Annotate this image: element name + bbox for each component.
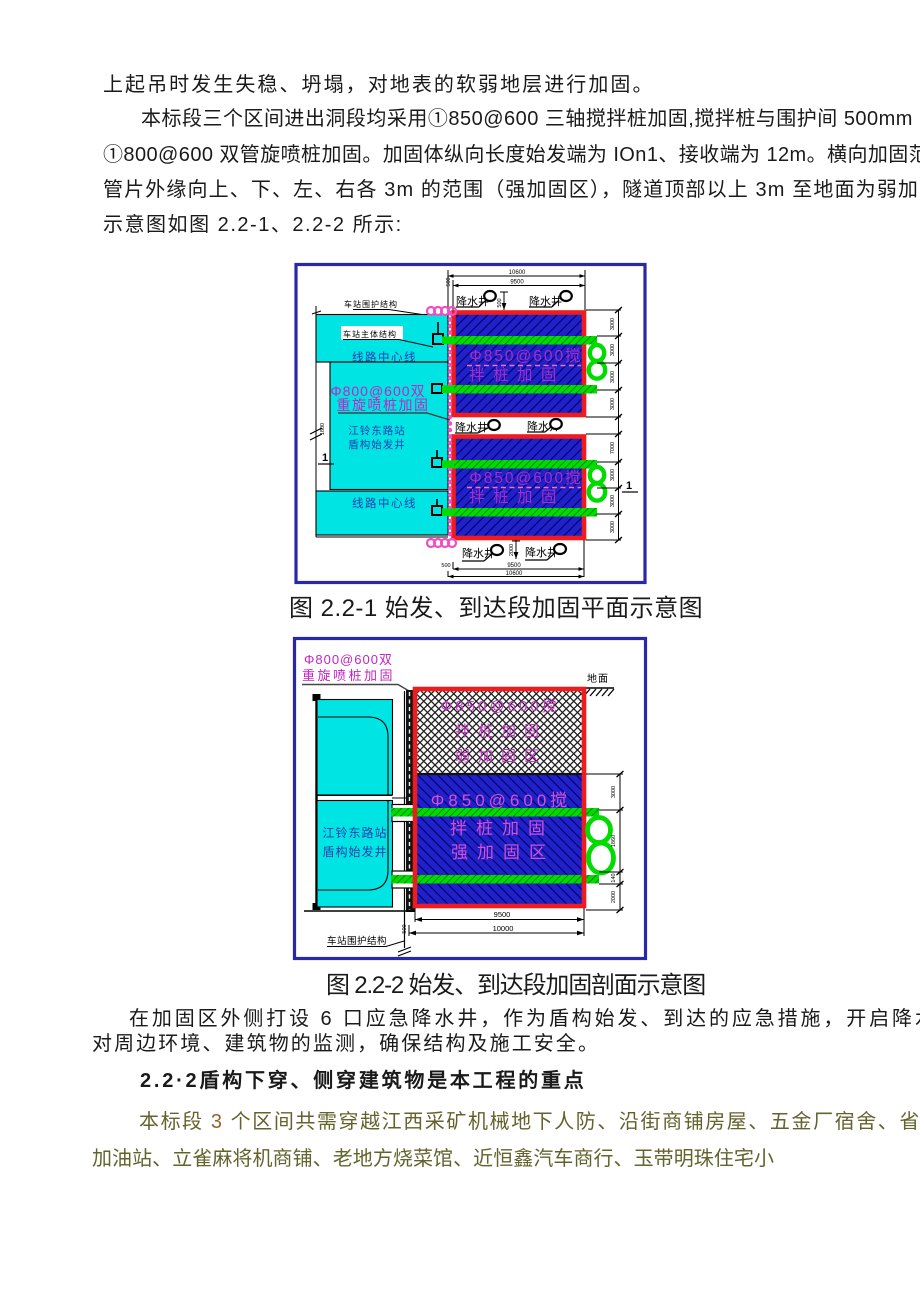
- svg-text:3000: 3000: [610, 469, 616, 481]
- svg-text:地面: 地面: [587, 672, 609, 685]
- svg-text:9500: 9500: [494, 910, 511, 919]
- svg-text:拌桩加固: 拌桩加固: [469, 488, 565, 506]
- svg-text:重旋喷桩加固: 重旋喷桩加固: [302, 668, 395, 683]
- svg-text:3000: 3000: [610, 344, 616, 356]
- svg-text:Φ850@600搅: Φ850@600搅: [469, 469, 582, 487]
- svg-text:强加固区: 强加固区: [451, 843, 555, 862]
- svg-text:500: 500: [446, 277, 452, 286]
- svg-text:车站围护结构: 车站围护结构: [344, 299, 398, 309]
- svg-text:7000: 7000: [610, 442, 616, 454]
- svg-text:降水井: 降水井: [462, 546, 495, 560]
- svg-text:重旋喷桩加固: 重旋喷桩加固: [337, 397, 430, 413]
- svg-text:Φ850@600搅: Φ850@600搅: [431, 791, 572, 810]
- svg-text:车站主体结构: 车站主体结构: [343, 329, 397, 339]
- svg-text:线路中心线: 线路中心线: [352, 496, 417, 510]
- svg-text:盾构始发井: 盾构始发井: [348, 438, 406, 451]
- svg-text:3000: 3000: [610, 371, 616, 383]
- svg-text:3000: 3000: [610, 398, 616, 410]
- svg-text:1860: 1860: [611, 835, 617, 847]
- svg-text:Φ850@600搅: Φ850@600搅: [440, 698, 559, 715]
- svg-text:拌桩加固: 拌桩加固: [450, 819, 554, 838]
- svg-text:降水井: 降水井: [455, 420, 488, 434]
- svg-text:江铃东路站: 江铃东路站: [348, 424, 406, 437]
- svg-text:10600: 10600: [506, 571, 523, 577]
- svg-text:1800: 1800: [320, 423, 326, 435]
- svg-text:1: 1: [626, 480, 632, 492]
- svg-text:降水井: 降水井: [529, 294, 562, 308]
- svg-text:3000: 3000: [610, 495, 616, 507]
- svg-text:10600: 10600: [509, 270, 526, 276]
- svg-text:江铃东路站: 江铃东路站: [322, 825, 387, 840]
- svg-text:9500: 9500: [510, 280, 524, 286]
- svg-text:3000: 3000: [610, 521, 616, 533]
- svg-text:1: 1: [322, 452, 328, 464]
- svg-text:9500: 9500: [507, 563, 521, 569]
- svg-text:Φ800@600双: Φ800@600双: [304, 652, 393, 667]
- svg-text:弱加固区: 弱加固区: [455, 748, 547, 765]
- svg-text:3000: 3000: [610, 318, 616, 330]
- svg-text:10000: 10000: [493, 924, 514, 933]
- svg-text:拌桩加固: 拌桩加固: [455, 723, 547, 740]
- svg-text:车站围护结构: 车站围护结构: [327, 935, 387, 947]
- svg-text:3000: 3000: [611, 786, 617, 798]
- svg-text:降水井: 降水井: [525, 545, 558, 559]
- svg-text:Φ850@600搅: Φ850@600搅: [469, 347, 582, 365]
- svg-text:500: 500: [497, 298, 503, 307]
- svg-text:500: 500: [402, 924, 408, 933]
- svg-text:2000: 2000: [611, 891, 617, 903]
- svg-text:500: 500: [441, 563, 450, 569]
- svg-text:140: 140: [611, 873, 617, 882]
- svg-text:拌桩加固: 拌桩加固: [469, 366, 565, 384]
- svg-text:2000: 2000: [509, 544, 515, 556]
- svg-text:盾构始发井: 盾构始发井: [322, 844, 387, 859]
